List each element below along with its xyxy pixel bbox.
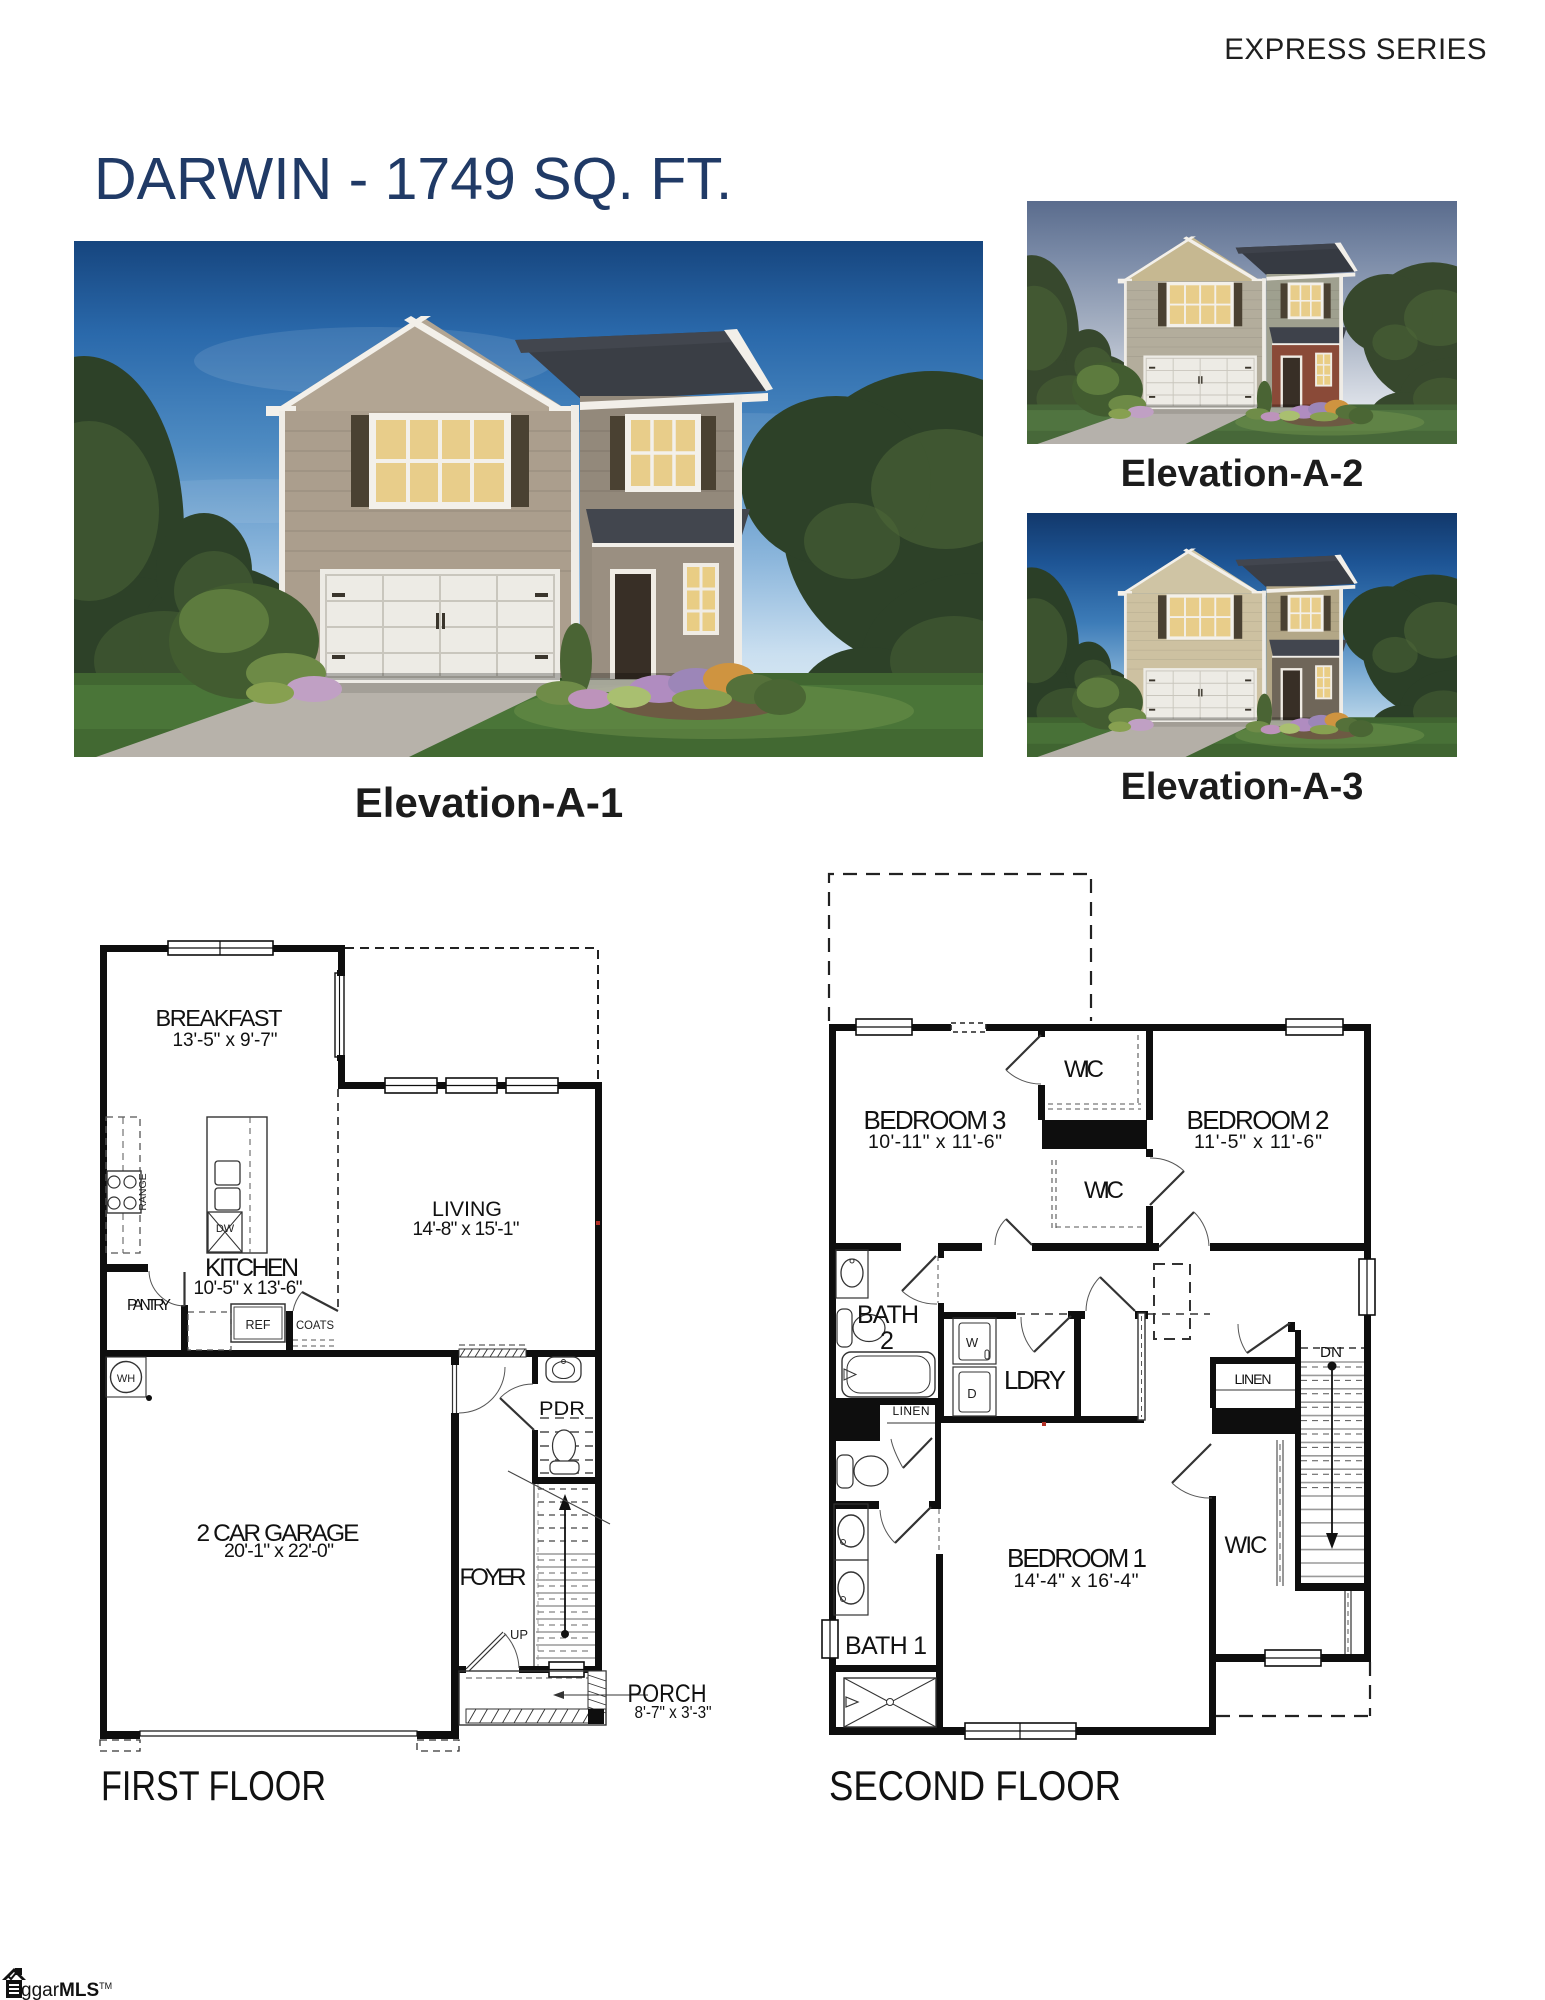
svg-text:8'-7" x 3'-3": 8'-7" x 3'-3" xyxy=(635,1702,712,1722)
svg-text:PANTRY: PANTRY xyxy=(127,1297,171,1314)
svg-text:D: D xyxy=(967,1386,976,1401)
svg-text:BATH: BATH xyxy=(857,1301,919,1329)
svg-text:LDRY: LDRY xyxy=(1004,1365,1066,1395)
svg-text:DN: DN xyxy=(1320,1344,1342,1361)
svg-text:WIC: WIC xyxy=(1064,1056,1104,1083)
svg-text:BEDROOM 1: BEDROOM 1 xyxy=(1007,1543,1147,1573)
svg-text:13'-5" x 9'-7": 13'-5" x 9'-7" xyxy=(173,1030,278,1051)
svg-text:COATS: COATS xyxy=(296,1320,334,1332)
svg-text:BATH 1: BATH 1 xyxy=(845,1632,927,1660)
svg-text:WIC: WIC xyxy=(1084,1177,1124,1204)
svg-text:14'-4" x 16'-4": 14'-4" x 16'-4" xyxy=(1014,1570,1139,1592)
svg-text:WH: WH xyxy=(117,1373,135,1385)
svg-text:RANGE: RANGE xyxy=(137,1173,149,1210)
svg-text:2: 2 xyxy=(880,1327,894,1355)
svg-text:SECOND FLOOR: SECOND FLOOR xyxy=(829,1762,1121,1809)
svg-text:10'-11" x 11'-6": 10'-11" x 11'-6" xyxy=(868,1131,1002,1153)
svg-text:WIC: WIC xyxy=(1225,1532,1268,1559)
svg-text:10'-5" x 13'-6": 10'-5" x 13'-6" xyxy=(194,1278,303,1299)
svg-text:11'-5" x 11'-6": 11'-5" x 11'-6" xyxy=(1194,1131,1322,1153)
svg-text:BREAKFAST: BREAKFAST xyxy=(156,1005,283,1031)
svg-text:FIRST FLOOR: FIRST FLOOR xyxy=(101,1762,326,1809)
svg-text:20'-1" x 22'-0": 20'-1" x 22'-0" xyxy=(224,1540,334,1562)
svg-text:LINEN: LINEN xyxy=(893,1404,930,1418)
svg-text:UP: UP xyxy=(510,1627,528,1642)
svg-text:W: W xyxy=(966,1335,979,1350)
svg-text:FOYER: FOYER xyxy=(460,1564,527,1591)
svg-text:LINEN: LINEN xyxy=(1235,1371,1272,1387)
svg-text:LIVING: LIVING xyxy=(432,1197,502,1221)
svg-text:REF: REF xyxy=(246,1318,271,1332)
svg-text:DW: DW xyxy=(216,1223,235,1235)
svg-text:PDR: PDR xyxy=(539,1398,585,1420)
svg-text:14'-8" x 15'-1": 14'-8" x 15'-1" xyxy=(413,1219,520,1240)
